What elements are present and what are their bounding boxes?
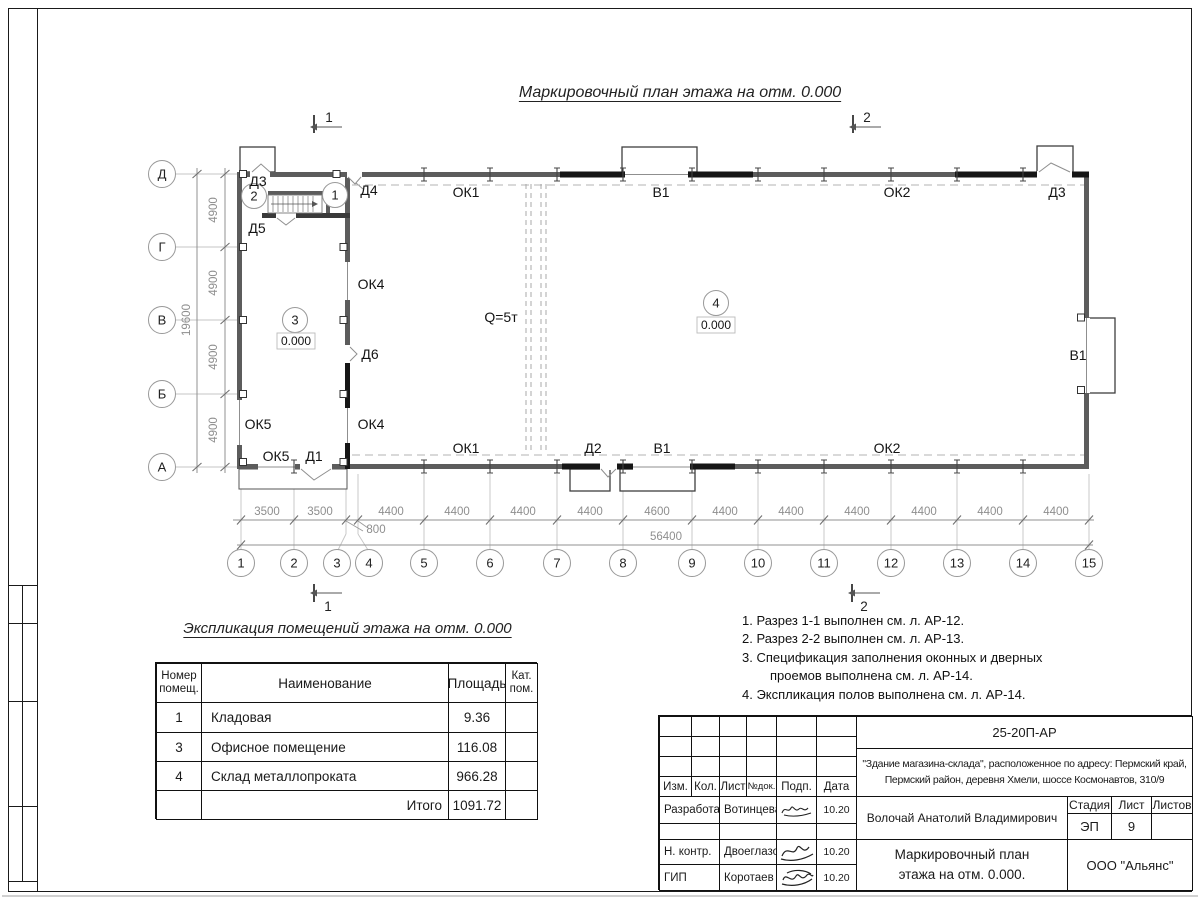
table-header-name: Наименование	[201, 663, 449, 703]
dim-bottom-1: 3500	[254, 506, 280, 518]
stamp-column-divider	[22, 585, 23, 881]
section-mark-1-bottom: 1	[324, 599, 332, 614]
empty-date-cell	[816, 823, 857, 840]
sheets-label: Листов	[1151, 796, 1193, 814]
sheet-label: Лист	[1111, 796, 1152, 814]
dim-bottom-13: 4400	[1043, 506, 1069, 518]
table-row1-area: 9.36	[448, 702, 506, 733]
revision-cell	[659, 716, 692, 737]
dim-bottom-8: 4400	[712, 506, 738, 518]
client-name: Волочай Анатолий Владимирович	[856, 796, 1068, 840]
stamp-box-line	[8, 701, 37, 702]
col-podp: Подп.	[776, 776, 817, 797]
axis-col-14: 14	[1016, 556, 1030, 571]
axis-col-12: 12	[884, 556, 898, 571]
revision-cell	[776, 716, 817, 737]
empty-name-cell	[719, 823, 777, 840]
table-row2-area: 116.08	[448, 732, 506, 762]
label-ok1-top: ОК1	[453, 184, 480, 200]
dim-left-total: 19600	[181, 304, 193, 336]
revision-cell	[659, 736, 692, 757]
table-total-label: Итого	[201, 790, 449, 820]
revision-cell	[776, 736, 817, 757]
dim-offset-800: 800	[366, 524, 385, 536]
section-mark-1-top: 1	[325, 110, 333, 125]
revision-cell	[691, 756, 720, 777]
col-izm: Изм.	[659, 776, 692, 797]
table-row1-num: 1	[156, 702, 202, 733]
revision-cell	[746, 756, 777, 777]
drawing-sheet: Маркировочный план этажа на отм. 0.000	[0, 0, 1200, 900]
revision-cell	[691, 716, 720, 737]
room-number-4: 4	[712, 296, 719, 311]
role-ncontrol: Н. контр.	[659, 839, 720, 865]
notes-list: 1. Разрез 1-1 выполнен см. л. АР-12. 2. …	[742, 612, 1060, 704]
revision-cell	[691, 736, 720, 757]
table-row3-area: 966.28	[448, 761, 506, 791]
room-number-1: 1	[331, 188, 338, 203]
room-number-3: 3	[291, 313, 298, 328]
explication-title: Экспликация помещений этажа на отм. 0.00…	[170, 620, 525, 637]
section-marks: 1 2 1 2	[310, 110, 881, 614]
axis-col-8: 8	[619, 556, 626, 571]
label-crane-capacity: Q=5т	[484, 309, 518, 325]
stamp-box-line	[8, 623, 37, 624]
label-ok2-top: ОК2	[884, 184, 911, 200]
role-developer: Разработал	[659, 796, 720, 824]
organization-name: ООО "Альянс"	[1067, 839, 1193, 891]
axis-col-11: 11	[817, 556, 831, 571]
name-gip: Коротаев	[719, 864, 777, 891]
dim-bottom-2: 3500	[307, 506, 333, 518]
table-row2-cat	[505, 732, 538, 762]
table-header-cat: Кат. пом.	[505, 663, 538, 703]
signature-squiggle	[779, 842, 815, 862]
name-developer: Вотинцева	[719, 796, 777, 824]
revision-cell	[719, 756, 747, 777]
revision-cell	[816, 716, 857, 737]
table-row2-num: 3	[156, 732, 202, 762]
axis-row-a: А	[158, 460, 167, 475]
axis-circles-left: Д Г В Б А	[149, 161, 176, 481]
sheet-edge	[2, 895, 1198, 897]
col-ndok: №док.	[746, 776, 777, 797]
dim-left-3: 4900	[208, 344, 220, 370]
axis-row-g: Г	[158, 240, 165, 255]
dim-bottom-10: 4400	[844, 506, 870, 518]
label-d3-top-right: Д3	[1048, 184, 1065, 200]
axis-row-b: Б	[158, 387, 167, 402]
label-d5: Д5	[248, 220, 265, 236]
role-gip: ГИП	[659, 864, 720, 891]
dim-bottom-total: 56400	[650, 531, 682, 543]
date-ncontrol: 10.20	[816, 839, 857, 865]
label-v1-right: В1	[1069, 347, 1086, 363]
label-ok1-bottom: ОК1	[453, 440, 480, 456]
axis-col-5: 5	[420, 556, 427, 571]
table-header-area: Площадь	[448, 663, 506, 703]
dim-bottom-7: 4600	[644, 506, 670, 518]
axis-col-10: 10	[751, 556, 765, 571]
axis-row-d: Д	[158, 167, 167, 182]
note-item-3: 3. Спецификация заполнения оконных и две…	[742, 649, 1060, 686]
table-total-value: 1091.72	[448, 790, 506, 820]
window-tick-marks	[291, 168, 1026, 473]
date-developer: 10.20	[816, 796, 857, 824]
label-ok4-lower: ОК4	[358, 416, 385, 432]
axis-col-4: 4	[365, 556, 372, 571]
explication-table: Номер помещ. Наименование Площадь Кат. п…	[155, 662, 537, 819]
label-v1-bottom: В1	[653, 440, 670, 456]
section-mark-2-top: 2	[863, 110, 871, 125]
axis-col-9: 9	[688, 556, 695, 571]
stage-label: Стадия	[1067, 796, 1112, 814]
dim-bottom-6: 4400	[577, 506, 603, 518]
label-ok4-upper: ОК4	[358, 276, 385, 292]
signature-squiggle	[780, 802, 814, 818]
floor-plan-drawing: 4900 4900 4900 4900 19600 3500 3500 4400…	[0, 0, 1200, 620]
axis-col-3: 3	[333, 556, 340, 571]
table-header-num: Номер помещ.	[156, 663, 202, 703]
axis-grid	[176, 174, 1089, 550]
level-mark-room3: 0.000	[281, 334, 311, 348]
label-v1-top: В1	[652, 184, 669, 200]
title-block: Изм. Кол. Лист №док. Подп. Дата Разработ…	[658, 715, 1192, 890]
drawing-title-cell: Маркировочный план этажа на отм. 0.000.	[856, 839, 1068, 891]
dim-left-4: 4900	[208, 417, 220, 443]
axis-col-15: 15	[1082, 556, 1096, 571]
empty-role-cell	[659, 823, 720, 840]
table-row1-cat	[505, 702, 538, 733]
sheet-number: 9	[1111, 813, 1152, 840]
dim-bottom-12: 4400	[977, 506, 1003, 518]
col-kol: Кол.	[691, 776, 720, 797]
dim-bottom-5: 4400	[510, 506, 536, 518]
project-address-line2: Пермский район, деревня Хмели, шоссе Кос…	[885, 773, 1165, 789]
col-list: Лист	[719, 776, 747, 797]
axis-col-1: 1	[237, 556, 244, 571]
sheets-total	[1151, 813, 1193, 840]
note-item-2: 2. Разрез 2-2 выполнен см. л. АР-13.	[742, 630, 1060, 648]
axis-col-6: 6	[486, 556, 493, 571]
stage-value: ЭП	[1067, 813, 1112, 840]
table-total-empty	[156, 790, 202, 820]
axis-col-2: 2	[290, 556, 297, 571]
label-d2: Д2	[584, 440, 601, 456]
project-address: "Здание магазина-склада", расположенное …	[856, 748, 1193, 797]
table-row3-name: Склад металлопроката	[201, 761, 449, 791]
dimension-ticks	[193, 170, 1094, 550]
empty-sig-cell	[776, 823, 817, 840]
stamp-box-line	[8, 881, 37, 882]
col-data: Дата	[816, 776, 857, 797]
label-ok5-bottom: ОК5	[263, 448, 290, 464]
dim-bottom-9: 4400	[778, 506, 804, 518]
dim-bottom-11: 4400	[911, 506, 937, 518]
label-ok2-bottom: ОК2	[874, 440, 901, 456]
axis-row-v: В	[158, 313, 167, 328]
dim-left-1: 4900	[208, 197, 220, 223]
plan-labels: ОК1 В1 ОК2 Д3 Д3 Д4 Д5 ОК4 Д6 ОК4 ОК5 ОК…	[245, 173, 1087, 464]
table-total-cat	[505, 790, 538, 820]
table-row2-name: Офисное помещение	[201, 732, 449, 762]
signature-squiggle	[779, 868, 815, 888]
axis-circles-bottom: 1 2 3 4 5 6 7 8 9 10 11 12 13 14 15	[228, 550, 1103, 577]
signature-ncontrol	[776, 839, 817, 865]
label-ok5-left: ОК5	[245, 416, 272, 432]
revision-cell	[659, 756, 692, 777]
signature-developer	[776, 796, 817, 824]
doors	[252, 163, 1070, 480]
table-row3-cat	[505, 761, 538, 791]
revision-cell	[816, 756, 857, 777]
date-gip: 10.20	[816, 864, 857, 891]
project-address-line1: "Здание магазина-склада", расположенное …	[862, 757, 1186, 773]
axis-col-13: 13	[950, 556, 964, 571]
signature-gip	[776, 864, 817, 891]
label-d1: Д1	[305, 448, 322, 464]
revision-cell	[776, 756, 817, 777]
drawing-title-line1: Маркировочный план	[895, 845, 1030, 865]
axis-col-7: 7	[553, 556, 560, 571]
dim-bottom-3: 4400	[378, 506, 404, 518]
table-row3-num: 4	[156, 761, 202, 791]
level-mark-room4: 0.000	[701, 318, 731, 332]
label-d6: Д6	[361, 346, 378, 362]
name-ncontrol: Двоеглазов	[719, 839, 777, 865]
revision-cell	[746, 716, 777, 737]
revision-cell	[719, 716, 747, 737]
revision-cell	[816, 736, 857, 757]
room-number-2: 2	[250, 189, 257, 204]
table-row1-name: Кладовая	[201, 702, 449, 733]
document-number: 25-20П-АР	[856, 716, 1193, 749]
revision-cell	[746, 736, 777, 757]
dim-left-2: 4900	[208, 270, 220, 296]
label-d4: Д4	[360, 182, 377, 198]
drawing-title-line2: этажа на отм. 0.000.	[899, 865, 1026, 885]
note-item-4: 4. Экспликация полов выполнена см. л. АР…	[742, 686, 1060, 704]
dim-bottom-4: 4400	[444, 506, 470, 518]
stamp-box-line	[8, 806, 37, 807]
revision-cell	[719, 736, 747, 757]
label-d3-top-left: Д3	[249, 173, 266, 189]
note-item-1: 1. Разрез 1-1 выполнен см. л. АР-12.	[742, 612, 1060, 630]
